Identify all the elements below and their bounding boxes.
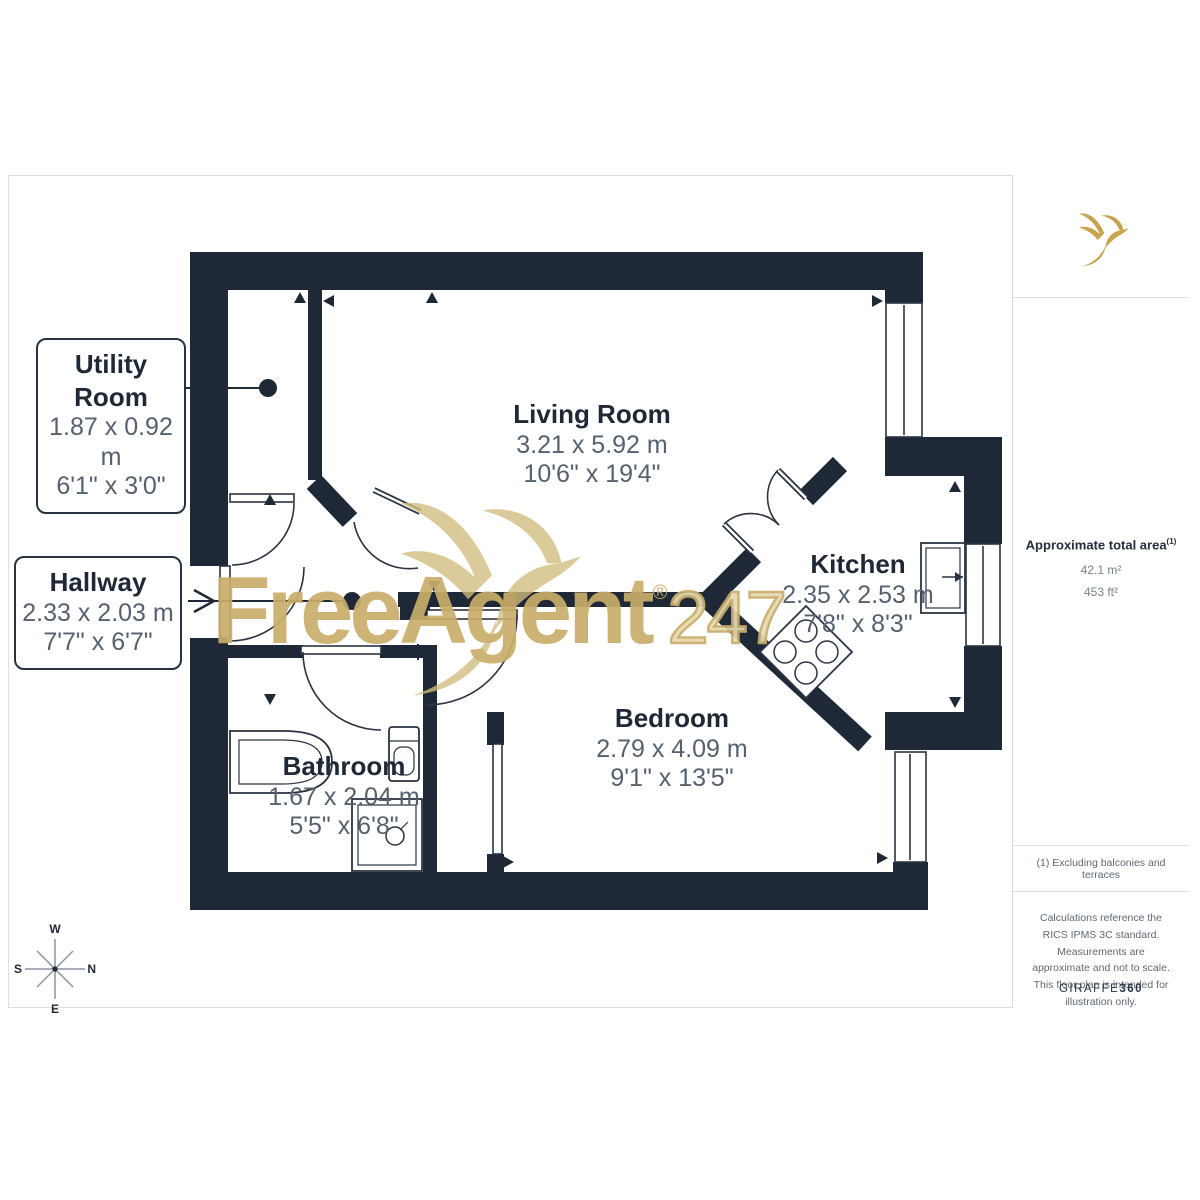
room-metric: 2.35 x 2.53 m [782,581,933,611]
total-area-m2: 42.1 m² [1013,563,1189,577]
room-imperial: 9'1" x 13'5" [596,764,747,794]
compass-north: N [87,962,96,976]
compass-rose: W N S E [14,922,96,1016]
room-name: Kitchen [782,548,933,581]
room-imperial: 5'5" x 6'8" [268,812,419,842]
total-area-ft2: 453 ft² [1013,585,1189,599]
total-area-label: Approximate total area(1) [1013,537,1189,552]
room-name: Bathroom [268,750,419,783]
bathroom-label: Bathroom 1.67 x 2.04 m 5'5" x 6'8" [268,750,419,842]
compass-east: E [51,1002,59,1016]
bedroom-label: Bedroom 2.79 x 4.09 m 9'1" x 13'5" [596,702,747,794]
room-name: Hallway [22,566,174,599]
giraffe360-logo: GIRAFFE360 [1013,983,1189,995]
compass-west: W [49,922,60,936]
giraffe360-name: GIRAFFE [1059,983,1119,995]
room-imperial: 10'6" x 19'4" [513,460,670,490]
living-room-label: Living Room 3.21 x 5.92 m 10'6" x 19'4" [513,398,670,490]
room-imperial: 6'1" x 3'0" [44,472,178,502]
hallway-label: Hallway 2.33 x 2.03 m 7'7" x 6'7" [14,556,182,670]
kitchen-label: Kitchen 2.35 x 2.53 m 7'8" x 8'3" [782,548,933,640]
room-name: Bedroom [596,702,747,735]
room-name: Living Room [513,398,670,431]
footnote: (1) Excluding balconies and terraces [1013,845,1189,892]
room-metric: 2.79 x 4.09 m [596,735,747,765]
room-metric: 2.33 x 2.03 m [22,599,174,629]
room-metric: 1.87 x 0.92 m [44,413,178,472]
total-area-block: Approximate total area(1) 42.1 m² 453 ft… [1013,537,1189,599]
utility-room-label: Utility Room 1.87 x 0.92 m 6'1" x 3'0" [36,338,186,514]
info-sidebar: Approximate total area(1) 42.1 m² 453 ft… [1012,175,1189,1008]
giraffe360-number: 360 [1119,983,1143,995]
brand-bird-icon [1068,203,1134,269]
room-metric: 1.67 x 2.04 m [268,783,419,813]
room-imperial: 7'7" x 6'7" [22,628,174,658]
total-area-footnote-ref: (1) [1167,537,1177,546]
hallway-leader-and-entry-arrow [188,590,361,612]
compass-star-icon [25,937,85,1001]
brand-logo-cell [1013,175,1189,298]
room-name: Utility Room [44,348,178,413]
room-imperial: 7'8" x 8'3" [782,610,933,640]
room-metric: 3.21 x 5.92 m [513,431,670,461]
compass-south: S [14,962,22,976]
